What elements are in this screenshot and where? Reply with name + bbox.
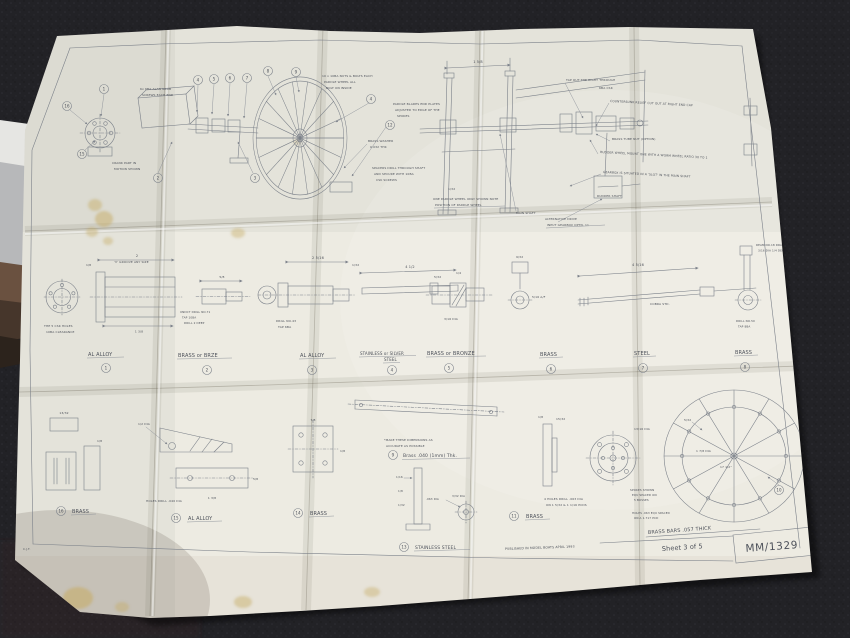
svg-text:3: 3 <box>254 176 257 181</box>
svg-text:STEEL: STEEL <box>384 357 398 362</box>
svg-text:MOTION SHOWN: MOTION SHOWN <box>114 167 140 171</box>
svg-text:SCREWS EACH END: SCREWS EACH END <box>142 93 174 97</box>
svg-text:7: 7 <box>246 76 249 81</box>
svg-text:ALTERNATIVE DRIVE: ALTERNATIVE DRIVE <box>545 217 577 221</box>
note: 10BA CLEARANCE <box>46 330 75 334</box>
svg-text:AL ALLOY: AL ALLOY <box>88 352 113 358</box>
note: TAP 10BA <box>181 316 196 320</box>
svg-text:TAP OUT THE RIGHT THROUGH: TAP OUT THE RIGHT THROUGH <box>565 78 615 82</box>
note: HOLES .063 EQU SPACED <box>632 511 670 515</box>
note: 3/16 DIA 1/4 DEEP <box>758 249 786 253</box>
svg-text:0.032 THK: 0.032 THK <box>370 145 388 149</box>
svg-text:10 x 10BA NUTS & BOLTS EACH: 10 x 10BA NUTS & BOLTS EACH <box>322 74 373 78</box>
svg-text:SPACERS DRILL THROUGH SHAFT: SPACERS DRILL THROUGH SHAFT <box>372 166 425 170</box>
dim: 4 1/2 <box>405 265 415 269</box>
dim: 1/16 <box>396 475 403 479</box>
note: 4 HOLES DRILL .063 DIA <box>544 497 584 501</box>
note: COBRA STD. <box>650 302 670 306</box>
note: ON A 1.717 PCD <box>634 516 658 520</box>
dim: 2 <box>136 254 138 258</box>
part9-material: Brass .040 (1mm) Thk. <box>403 453 457 459</box>
svg-text:14: 14 <box>295 511 301 516</box>
dim: 1 7/8 DIA <box>696 449 712 453</box>
svg-text:15: 15 <box>79 152 85 157</box>
svg-text:1: 1 <box>105 366 108 371</box>
dim: 5/16 A/F <box>532 295 546 299</box>
dim: 1/32 <box>352 263 359 267</box>
dim: 1/32 <box>398 503 405 507</box>
note: DRILL 2 DEEP <box>184 321 205 325</box>
dim: 5/8 <box>253 477 258 481</box>
note: DRILL NO.43 <box>276 319 296 323</box>
note: *MAKE THESE DIMENSIONS AS <box>384 438 433 442</box>
part16-material: BRASS <box>72 509 89 515</box>
svg-text:8: 8 <box>267 69 270 74</box>
note: REAM NO.18 DRAW <box>756 243 785 247</box>
note: TAP 6BA <box>277 325 292 329</box>
svg-text:9: 9 <box>392 453 395 458</box>
svg-text:6x 6BA ALAN GRUB: 6x 6BA ALAN GRUB <box>140 87 171 91</box>
dim: 5/8 <box>219 275 224 279</box>
svg-text:MAIN SHAFT: MAIN SHAFT <box>516 211 536 215</box>
dim: 13/16 DIA <box>634 427 651 431</box>
note: ON 1 5/32 & 1 1/16 PCDS <box>546 503 587 507</box>
dim: 1 3/8 <box>208 496 216 500</box>
svg-text:4: 4 <box>197 78 200 83</box>
svg-text:CSK SCREWS: CSK SCREWS <box>376 178 397 182</box>
dim: 1/8 <box>97 439 102 443</box>
svg-text:5: 5 <box>213 77 216 82</box>
note: ACCURATE AS POSSIBLE <box>386 444 425 448</box>
svg-text:BRASS or BRZE: BRASS or BRZE <box>178 353 218 359</box>
svg-text:6BA CSK: 6BA CSK <box>599 86 614 90</box>
part11-material: BRASS <box>526 514 543 520</box>
svg-text:RUDDER SHAFT: RUDDER SHAFT <box>597 194 622 198</box>
svg-text:CRANK PART IN: CRANK PART IN <box>112 161 136 165</box>
svg-text:8: 8 <box>744 365 747 370</box>
note: UNDCT DRILL NO.71 <box>180 310 211 314</box>
svg-text:7: 7 <box>642 366 645 371</box>
svg-text:INPUT GEARBOX OPTN. 11: INPUT GEARBOX OPTN. 11 <box>547 223 589 227</box>
note: HOLES DRILL .040 DIA <box>146 499 183 503</box>
svg-text:16: 16 <box>64 104 70 109</box>
svg-text:13: 13 <box>401 545 407 550</box>
svg-text:BRASS WASHER: BRASS WASHER <box>368 139 393 143</box>
dim: 1 3/8 <box>135 330 143 334</box>
dim: 3/32 DIA <box>452 494 465 498</box>
svg-text:10: 10 <box>776 488 782 493</box>
svg-text:12: 12 <box>387 123 393 128</box>
svg-text:4: 4 <box>391 368 394 373</box>
svg-text:POSITION OF PADDLE WHEEL: POSITION OF PADDLE WHEEL <box>435 203 482 207</box>
dim: 1/8 <box>340 449 345 453</box>
drafter-initials: C.J.T. <box>23 547 31 551</box>
part14-material: BRASS <box>310 511 327 517</box>
svg-text:1/32: 1/32 <box>448 187 455 191</box>
svg-text:16: 16 <box>58 509 64 514</box>
dim: .063 DIA <box>426 497 439 501</box>
dim: 3/16 DIA <box>444 317 459 321</box>
svg-text:BRASS: BRASS <box>735 350 752 356</box>
svg-text:AND SECURE WITH 10BA: AND SECURE WITH 10BA <box>374 172 415 176</box>
plan-photo-svg: MM/1329 Sheet 3 of 5 PUBLISHED IN MODEL … <box>0 0 850 638</box>
dim: 17 1/2° <box>720 465 732 469</box>
svg-text:6: 6 <box>229 76 232 81</box>
dim: 15/32 <box>556 417 565 421</box>
dim: 1/8 <box>86 263 91 267</box>
svg-text:BRASS: BRASS <box>540 352 557 358</box>
dim: 2 5/16 <box>312 256 324 260</box>
svg-text:2: 2 <box>157 176 160 181</box>
svg-text:11: 11 <box>511 514 517 519</box>
note: THE 5 CSK HOLES <box>43 324 73 328</box>
note: DRILL NO.50 <box>736 319 755 323</box>
dim: 9/32 <box>516 255 523 259</box>
part15-material: AL ALLOY <box>188 516 213 522</box>
svg-text:5: 5 <box>448 366 451 371</box>
note: TAP 8BA <box>737 325 750 329</box>
dim: 5/32 <box>434 275 441 279</box>
note: SPOKES SHOWN <box>630 488 654 492</box>
svg-text:STAINLESS or SILVER: STAINLESS or SILVER <box>360 351 404 356</box>
svg-text:PADDLE WHEEL ALL: PADDLE WHEEL ALL <box>324 80 356 84</box>
svg-text:4: 4 <box>370 97 373 102</box>
dim: 1/2 DIA <box>138 422 151 426</box>
svg-text:STEEL: STEEL <box>634 351 650 357</box>
svg-text:6: 6 <box>550 367 553 372</box>
svg-text:1: 1 <box>103 87 106 92</box>
svg-text:ADJUSTED TO EDGE OF THE: ADJUSTED TO EDGE OF THE <box>395 108 440 112</box>
note: 'V' GROOVE ANY SIZE <box>114 260 149 264</box>
svg-text:9: 9 <box>295 70 298 75</box>
note: 5 BOSSES <box>634 498 649 502</box>
svg-text:PADDLE BLADES END PLATES: PADDLE BLADES END PLATES <box>393 102 440 106</box>
svg-text:BOLT ON INSIDE: BOLT ON INSIDE <box>326 86 352 90</box>
dim: 1/8 <box>538 415 543 419</box>
dim: 7/8 <box>310 418 315 422</box>
svg-text:ONE PADDLE WHEEL ONLY SHOWN NO: ONE PADDLE WHEEL ONLY SHOWN NOTE <box>433 197 498 201</box>
dim: 13/32 <box>59 411 68 415</box>
dim: 1/8 <box>398 489 403 493</box>
svg-text:SPOKES: SPOKES <box>397 114 410 118</box>
dim: 4 5/16 <box>632 263 644 267</box>
svg-text:2: 2 <box>206 368 209 373</box>
svg-text:1 5/8: 1 5/8 <box>473 60 483 64</box>
dim: 1/4 <box>456 271 461 275</box>
svg-text:BRASS TUBE NUT (OPTION): BRASS TUBE NUT (OPTION) <box>612 137 656 141</box>
svg-text:15: 15 <box>173 516 179 521</box>
svg-text:AL ALLOY: AL ALLOY <box>300 353 325 359</box>
note: EQU SPACED ON <box>632 493 657 497</box>
photo-of-folded-plan: MM/1329 Sheet 3 of 5 PUBLISHED IN MODEL … <box>0 0 850 638</box>
dim: 5/32 <box>684 418 691 422</box>
svg-text:3: 3 <box>311 368 314 373</box>
